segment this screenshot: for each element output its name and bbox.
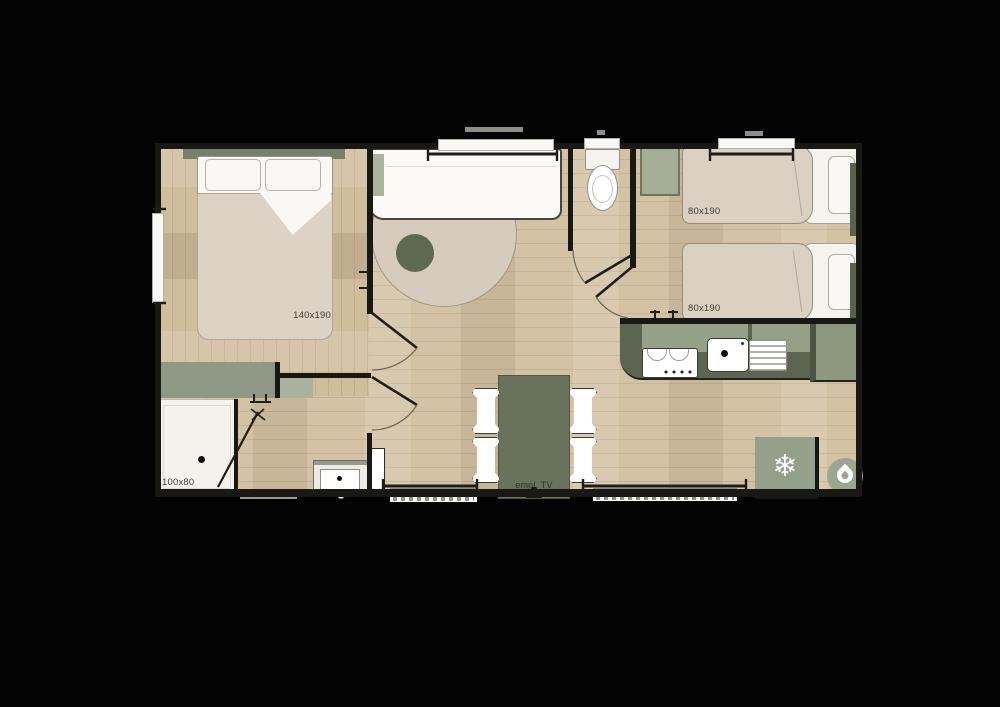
floor-plan: 140x190 80x190 80x190 empl. TV: [155, 143, 862, 497]
sofa-back-line: [386, 166, 556, 167]
pillow: [205, 159, 261, 191]
shower-drain: [198, 456, 205, 463]
wardrobe-twin-room: [640, 147, 680, 196]
sink-drain: [721, 350, 728, 357]
wall-master-bedroom: [367, 143, 373, 314]
burner: [647, 348, 667, 361]
sink-faucet: [741, 342, 744, 345]
washbasin-back-ledge: [314, 461, 368, 465]
window-living: [438, 139, 554, 151]
droplet-icon: [834, 464, 857, 487]
wall-twin-bedroom: [620, 318, 862, 324]
kitchen-tall-cabinet: [810, 320, 862, 382]
wall-bathroom: [278, 373, 371, 378]
wall-bathroom-stub: [275, 362, 280, 398]
cooktop-knobs: [662, 370, 692, 374]
master-bed-size-label: 140x190: [285, 310, 331, 321]
wall-entrance-post: [367, 433, 372, 491]
cooktop: [642, 348, 698, 378]
wall-wc-left: [568, 143, 573, 251]
bathroom-cabinet: [280, 377, 313, 398]
twin-bed-top-size-label: 80x190: [688, 206, 720, 217]
window-sill: [465, 127, 523, 132]
snowflake-icon: ❄: [772, 450, 797, 483]
wall-wc-right: [630, 143, 636, 268]
duvet-fold-line: [793, 152, 803, 216]
window-sill: [745, 131, 763, 136]
wall-shower: [234, 399, 238, 493]
droplet-inner: [840, 471, 850, 481]
screenshot-root: { "labels": { "master_bed": "140x190", "…: [0, 0, 1000, 707]
sofa-armrest: [372, 154, 384, 196]
sink-drainer: [749, 340, 787, 371]
wall-left: [155, 143, 161, 495]
dining-table: empl. TV: [498, 375, 570, 499]
burner: [669, 348, 689, 361]
kitchen-sink: [707, 338, 749, 372]
bathroom-wardrobe: [157, 362, 275, 398]
window-twin-bedroom: [718, 138, 795, 149]
pouf: [396, 234, 434, 272]
entrance-door-leaf: [371, 448, 385, 490]
shower-size-label: 100x80: [162, 477, 194, 488]
wall-bottom: [155, 489, 862, 497]
window-wc: [584, 138, 620, 149]
window-master-bedroom: [152, 213, 164, 303]
washbasin-drain: [337, 476, 342, 481]
window-sill: [597, 130, 605, 135]
duvet-fold-line: [793, 250, 803, 312]
sofa: [368, 148, 562, 220]
pillow: [265, 159, 321, 191]
toilet-bowl: [587, 165, 618, 211]
toilet-bowl-inner: [592, 175, 613, 203]
twin-bed-bottom-size-label: 80x190: [688, 303, 720, 314]
